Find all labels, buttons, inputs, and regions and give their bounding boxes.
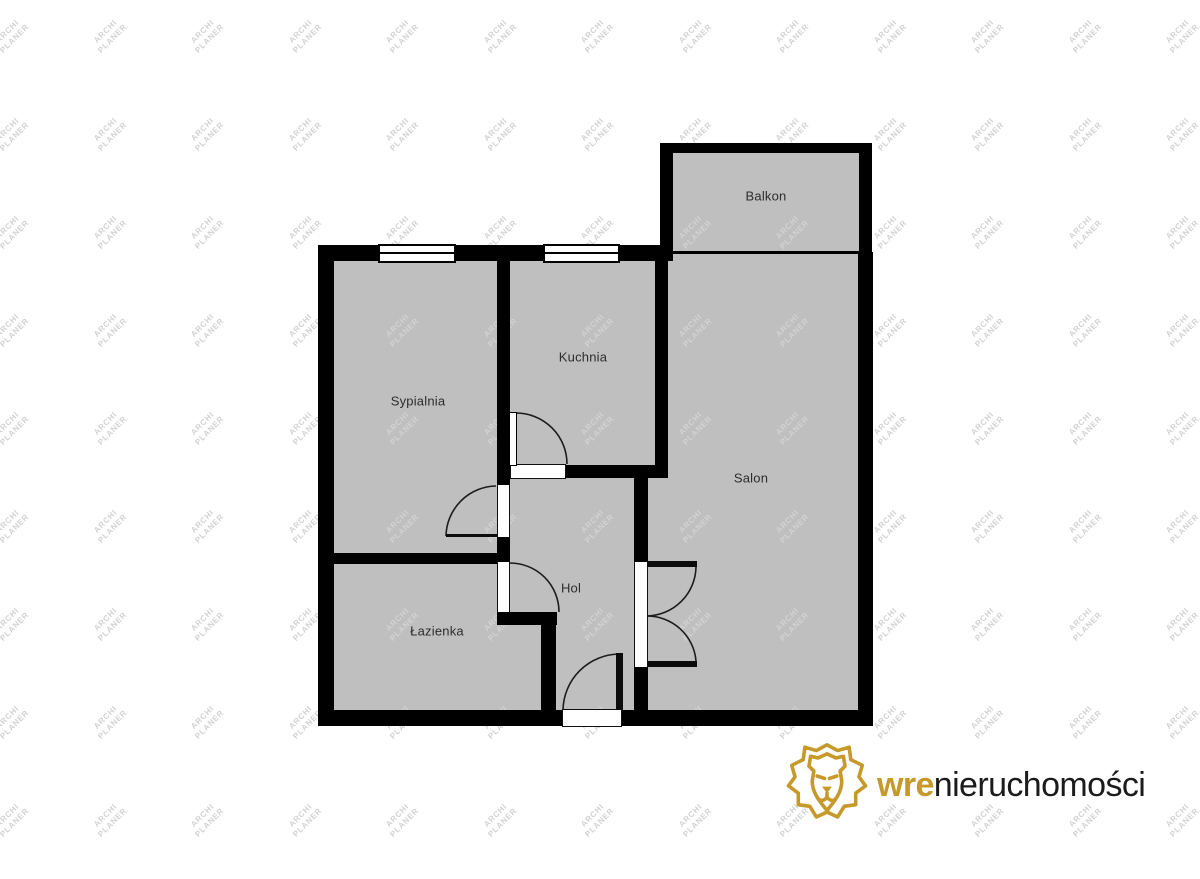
watermark-tile: ARCHIPLANER <box>0 603 31 643</box>
sypialnia-door-leaf <box>446 534 497 537</box>
watermark-tile: ARCHIPLANER <box>1161 799 1200 839</box>
salon-double-door-opening <box>634 562 648 667</box>
watermark-tile: ARCHIPLANER <box>966 309 1006 349</box>
wall-balcony-top <box>660 143 872 153</box>
wall-lazienka-right <box>541 625 556 710</box>
watermark-tile: ARCHIPLANER <box>186 505 226 545</box>
apartment-floor <box>326 250 866 720</box>
window-sypialnia <box>378 244 456 263</box>
watermark-tile: ARCHIPLANER <box>869 113 909 153</box>
watermark-tile: ARCHIPLANER <box>1064 211 1104 251</box>
watermark-tile: ARCHIPLANER <box>186 113 226 153</box>
watermark-tile: ARCHIPLANER <box>1161 113 1200 153</box>
watermark-tile: ARCHIPLANER <box>1064 407 1104 447</box>
watermark-tile: ARCHIPLANER <box>186 15 226 55</box>
watermark-tile: ARCHIPLANER <box>1161 603 1200 643</box>
watermark-tile: ARCHIPLANER <box>1064 505 1104 545</box>
watermark-tile: ARCHIPLANER <box>869 211 909 251</box>
watermark-tile: ARCHIPLANER <box>966 407 1006 447</box>
wall-kuchnia-salon <box>655 245 668 478</box>
watermark-tile: ARCHIPLANER <box>1064 701 1104 741</box>
brand-name: wrenieruchomości <box>877 768 1145 802</box>
watermark-tile: ARCHIPLANER <box>966 505 1006 545</box>
room-label-sypialnia: Sypialnia <box>391 394 446 409</box>
room-label-salon: Salon <box>734 471 768 486</box>
watermark-tile: ARCHIPLANER <box>284 113 324 153</box>
room-label-lazienka: Łazienka <box>410 624 464 639</box>
window-glass-line <box>379 252 455 254</box>
watermark-tile: ARCHIPLANER <box>89 799 129 839</box>
wall-kuchnia-bottom <box>565 465 668 478</box>
wall-right-main <box>858 252 873 726</box>
watermark-tile: ARCHIPLANER <box>89 505 129 545</box>
watermark-tile: ARCHIPLANER <box>966 211 1006 251</box>
watermark-tile: ARCHIPLANER <box>674 799 714 839</box>
watermark-tile: ARCHIPLANER <box>966 113 1006 153</box>
watermark-tile: ARCHIPLANER <box>1064 15 1104 55</box>
brand-name-rest: nieruchomości <box>934 766 1145 804</box>
kuchnia-door-threshold <box>510 464 566 479</box>
watermark-tile: ARCHIPLANER <box>89 603 129 643</box>
watermark-tile: ARCHIPLANER <box>576 15 616 55</box>
watermark-tile: ARCHIPLANER <box>576 113 616 153</box>
wall-balcony-right <box>859 143 872 253</box>
watermark-tile: ARCHIPLANER <box>0 15 31 55</box>
watermark-tile: ARCHIPLANER <box>284 799 324 839</box>
watermark-tile: ARCHIPLANER <box>1161 701 1200 741</box>
watermark-tile: ARCHIPLANER <box>869 15 909 55</box>
watermark-tile: ARCHIPLANER <box>966 701 1006 741</box>
brand-name-accent: wre <box>877 766 934 804</box>
watermark-tile: ARCHIPLANER <box>186 701 226 741</box>
wall-hol-salon-upper <box>634 465 648 562</box>
watermark-tile: ARCHIPLANER <box>89 211 129 251</box>
watermark-tile: ARCHIPLANER <box>966 603 1006 643</box>
watermark-tile: ARCHIPLANER <box>186 799 226 839</box>
watermark-tile: ARCHIPLANER <box>0 211 31 251</box>
watermark-tile: ARCHIPLANER <box>89 309 129 349</box>
wall-sypialnia-lazienka <box>334 553 497 564</box>
watermark-tile: ARCHIPLANER <box>869 505 909 545</box>
watermark-tile: ARCHIPLANER <box>479 799 519 839</box>
salon-door-upper-leaf <box>648 561 697 567</box>
wall-lazienka-stub <box>497 612 557 625</box>
window-glass-line <box>544 252 619 254</box>
watermark-tile: ARCHIPLANER <box>869 407 909 447</box>
watermark-tile: ARCHIPLANER <box>89 407 129 447</box>
sypialnia-door-opening <box>497 485 510 537</box>
entrance-door-threshold <box>562 709 622 727</box>
watermark-tile: ARCHIPLANER <box>869 309 909 349</box>
watermark-tile: ARCHIPLANER <box>186 309 226 349</box>
watermark-tile: ARCHIPLANER <box>186 603 226 643</box>
watermark-tile: ARCHIPLANER <box>479 113 519 153</box>
watermark-tile: ARCHIPLANER <box>0 701 31 741</box>
watermark-tile: ARCHIPLANER <box>1161 211 1200 251</box>
watermark-tile: ARCHIPLANER <box>479 15 519 55</box>
watermark-tile: ARCHIPLANER <box>869 603 909 643</box>
lazienka-door-opening <box>497 562 510 612</box>
room-label-kuchnia: Kuchnia <box>559 350 607 365</box>
watermark-tile: ARCHIPLANER <box>0 113 31 153</box>
watermark-tile: ARCHIPLANER <box>381 15 421 55</box>
salon-door-lower-leaf <box>648 661 697 667</box>
watermark-tile: ARCHIPLANER <box>89 15 129 55</box>
watermark-tile: ARCHIPLANER <box>0 799 31 839</box>
watermark-tile: ARCHIPLANER <box>89 113 129 153</box>
watermark-tile: ARCHIPLANER <box>966 15 1006 55</box>
brand-logo: wrenieruchomości <box>786 742 1145 828</box>
lion-icon <box>786 742 868 828</box>
watermark-tile: ARCHIPLANER <box>0 407 31 447</box>
watermark-tile: ARCHIPLANER <box>674 15 714 55</box>
kuchnia-door-leaf <box>509 412 517 466</box>
watermark-tile: ARCHIPLANER <box>576 799 616 839</box>
watermark-tile: ARCHIPLANER <box>1161 505 1200 545</box>
wall-left-main <box>318 245 334 726</box>
watermark-tile: ARCHIPLANER <box>1064 113 1104 153</box>
watermark-tile: ARCHIPLANER <box>0 309 31 349</box>
entrance-door-leaf <box>616 653 623 710</box>
watermark-tile: ARCHIPLANER <box>381 799 421 839</box>
window-kuchnia <box>543 244 620 263</box>
watermark-tile: ARCHIPLANER <box>869 701 909 741</box>
wall-hol-salon-lower <box>634 667 648 710</box>
watermark-tile: ARCHIPLANER <box>381 113 421 153</box>
room-label-balkon: Balkon <box>746 189 787 204</box>
watermark-tile: ARCHIPLANER <box>186 211 226 251</box>
watermark-tile: ARCHIPLANER <box>771 15 811 55</box>
wall-sypialnia-hol <box>497 537 510 562</box>
watermark-tile: ARCHIPLANER <box>284 15 324 55</box>
wall-balcony-left <box>660 143 673 255</box>
watermark-tile: ARCHIPLANER <box>0 505 31 545</box>
balcony-salon-divider <box>673 251 859 254</box>
room-label-hol: Hol <box>561 581 581 596</box>
watermark-tile: ARCHIPLANER <box>1161 15 1200 55</box>
watermark-tile: ARCHIPLANER <box>1064 603 1104 643</box>
watermark-tile: ARCHIPLANER <box>1161 309 1200 349</box>
page: Balkon Sypialnia Kuchnia Salon Hol Łazie… <box>0 0 1200 879</box>
watermark-tile: ARCHIPLANER <box>1161 407 1200 447</box>
watermark-tile: ARCHIPLANER <box>89 701 129 741</box>
watermark-tile: ARCHIPLANER <box>1064 309 1104 349</box>
watermark-tile: ARCHIPLANER <box>186 407 226 447</box>
